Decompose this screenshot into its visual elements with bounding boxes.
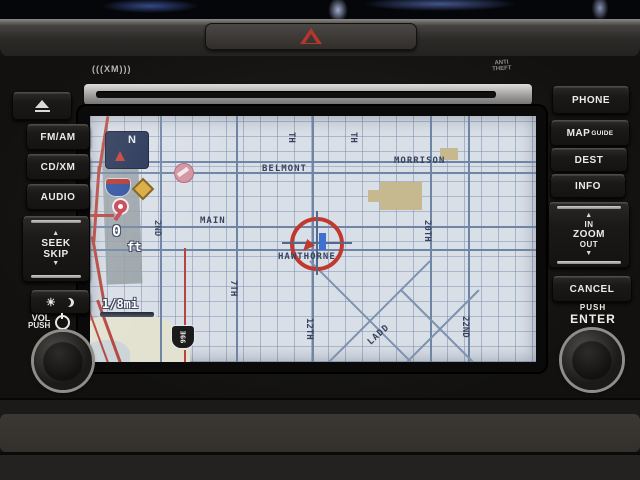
dimmer-button[interactable]: ☀ bbox=[30, 290, 90, 314]
street-label-ladd: LADD bbox=[366, 323, 392, 348]
route-99e-shield-icon: 99E bbox=[172, 326, 194, 348]
sun-icon: ☀ bbox=[46, 296, 56, 309]
destination-flag-icon bbox=[319, 233, 326, 250]
audio-button[interactable]: AUDIO bbox=[26, 184, 90, 210]
street-2nd bbox=[160, 116, 162, 362]
zoom-button[interactable]: ▲ IN ZOOM OUT ▼ bbox=[548, 202, 630, 268]
vehicle-cursor-icon bbox=[303, 239, 315, 251]
cd-xm-button[interactable]: CD/XM bbox=[26, 154, 90, 180]
eject-button[interactable] bbox=[12, 92, 72, 120]
street-label-22nd: 22ND bbox=[460, 316, 470, 338]
info-button[interactable]: INFO bbox=[550, 174, 626, 198]
distance-unit: ft bbox=[127, 240, 141, 254]
zoom-in-icon: ▲ bbox=[585, 212, 592, 220]
street-7th bbox=[236, 116, 238, 362]
volume-label: VOL PUSH bbox=[28, 314, 70, 330]
hazard-button[interactable] bbox=[205, 23, 417, 50]
fm-am-button[interactable]: FM/AM bbox=[26, 124, 90, 150]
map-cursor-target[interactable] bbox=[290, 217, 344, 271]
distance-value: 0 bbox=[112, 222, 121, 240]
center-console: (((XM))) ANTI THEFT bbox=[0, 0, 640, 480]
diagonal-street bbox=[309, 260, 431, 362]
street-label-7th: 7TH bbox=[228, 280, 238, 296]
route-99e-line bbox=[184, 248, 186, 328]
enter-joystick[interactable] bbox=[562, 330, 622, 390]
building-footprint bbox=[368, 190, 382, 202]
map-scale-label: 1/8mi bbox=[102, 297, 138, 311]
north-arrow-icon bbox=[115, 151, 125, 161]
cd-slot[interactable] bbox=[84, 84, 532, 105]
map-guide-button[interactable]: MAP GUIDE bbox=[550, 120, 630, 146]
route-99e-line bbox=[184, 350, 186, 362]
interstate-shield-icon bbox=[106, 179, 130, 196]
poi-pin-icon bbox=[114, 200, 127, 213]
dest-button[interactable]: DEST bbox=[550, 148, 628, 172]
phone-button[interactable]: PHONE bbox=[552, 86, 630, 114]
zoom-out-icon: ▼ bbox=[585, 250, 592, 258]
street-label-20th: 20TH bbox=[422, 220, 432, 242]
street-label-belmont: BELMONT bbox=[262, 164, 307, 174]
eject-icon bbox=[35, 100, 50, 112]
dash-trim-bottom bbox=[0, 452, 640, 480]
instrument-display-partial bbox=[0, 0, 640, 20]
street-label-hawthorne: HAWTHORNE bbox=[278, 252, 336, 262]
street-label-morrison: MORRISON bbox=[394, 156, 445, 166]
building-footprint bbox=[380, 182, 422, 210]
seek-skip-button[interactable]: ▲ SEEK SKIP ▼ bbox=[22, 216, 90, 282]
volume-knob[interactable] bbox=[34, 332, 92, 390]
cd-slot-opening bbox=[96, 91, 496, 98]
seek-up-icon: ▲ bbox=[52, 230, 59, 238]
street-label-main: MAIN bbox=[200, 216, 226, 226]
moon-icon bbox=[65, 298, 74, 307]
power-icon bbox=[55, 315, 70, 330]
street-label-cutoff: TH bbox=[286, 132, 296, 143]
xm-radio-label: (((XM))) bbox=[92, 64, 131, 74]
road-closure-icon bbox=[174, 163, 194, 183]
street-label-cutoff: TH bbox=[348, 132, 358, 143]
map-scale-bar bbox=[100, 312, 154, 317]
nav-map-screen[interactable]: N BELMONT MORRISON MAIN HAWTHORNE 2ND 7T… bbox=[90, 116, 536, 362]
dash-trim-band bbox=[0, 414, 640, 452]
route-line bbox=[90, 214, 114, 217]
cancel-button[interactable]: CANCEL bbox=[552, 276, 632, 302]
anti-theft-label: ANTI THEFT bbox=[492, 60, 512, 73]
street-label-2nd: 2ND bbox=[152, 220, 162, 236]
skip-down-icon: ▼ bbox=[52, 260, 59, 268]
compass-icon: N bbox=[106, 132, 148, 168]
route-line bbox=[91, 236, 106, 305]
water-area bbox=[90, 340, 130, 362]
street-label-12th: 12TH bbox=[304, 318, 314, 340]
route-line bbox=[92, 166, 100, 242]
push-enter-label: PUSH ENTER bbox=[556, 303, 630, 326]
